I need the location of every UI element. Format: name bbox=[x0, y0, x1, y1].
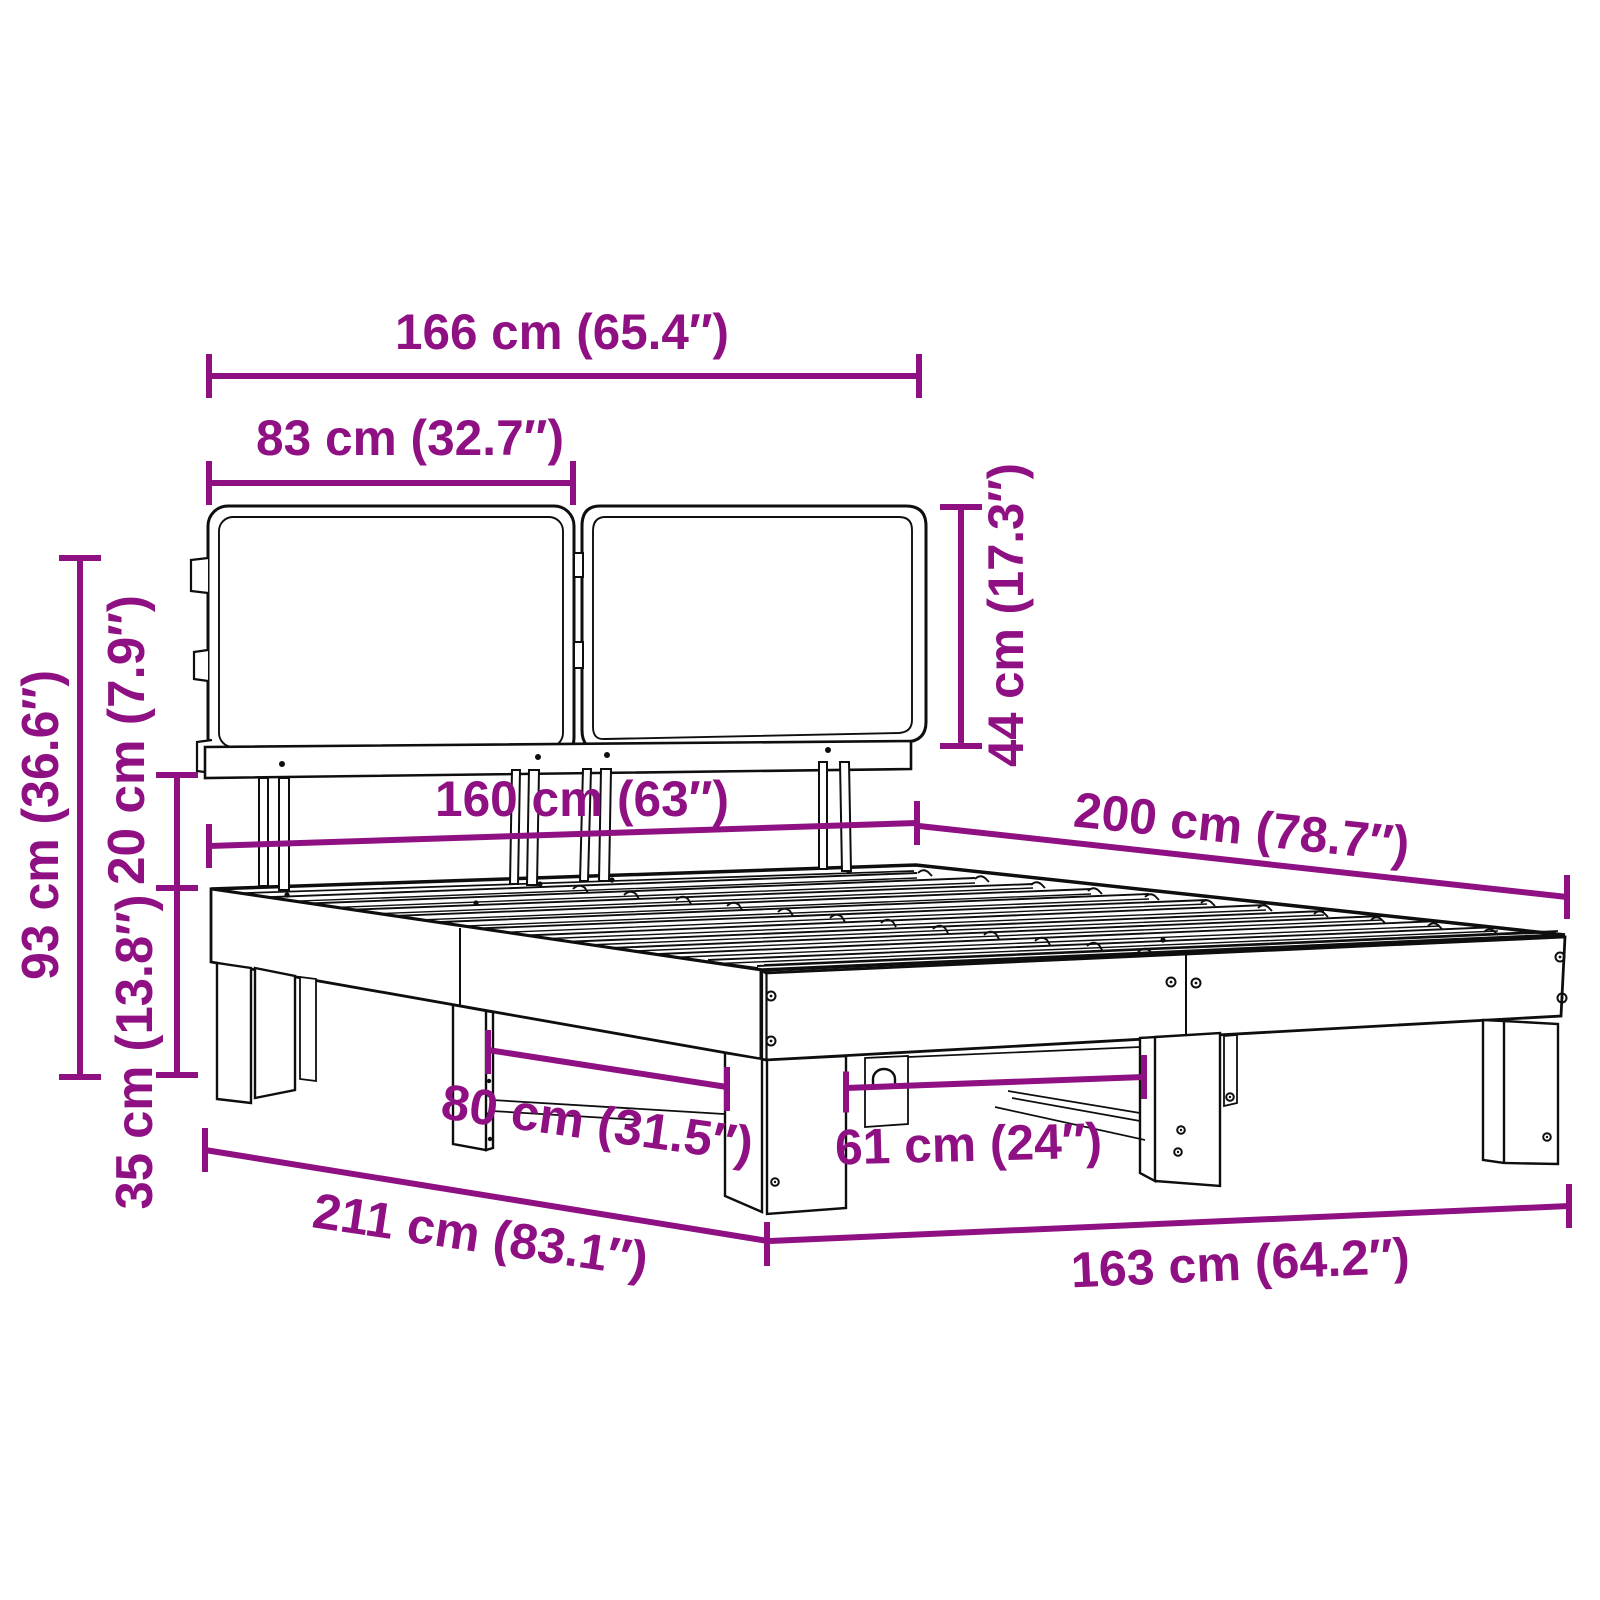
svg-text:160 cm (63″): 160 cm (63″) bbox=[435, 771, 729, 827]
svg-text:83 cm (32.7″): 83 cm (32.7″) bbox=[256, 410, 564, 466]
svg-text:35 cm (13.8″): 35 cm (13.8″) bbox=[106, 895, 164, 1210]
svg-text:93 cm (36.6″): 93 cm (36.6″) bbox=[12, 670, 70, 980]
svg-text:20 cm (7.9″): 20 cm (7.9″) bbox=[98, 595, 156, 885]
svg-text:61 cm (24″): 61 cm (24″) bbox=[834, 1113, 1102, 1176]
svg-text:44 cm (17.3″): 44 cm (17.3″) bbox=[978, 463, 1034, 767]
svg-text:166 cm (65.4″): 166 cm (65.4″) bbox=[395, 304, 729, 360]
